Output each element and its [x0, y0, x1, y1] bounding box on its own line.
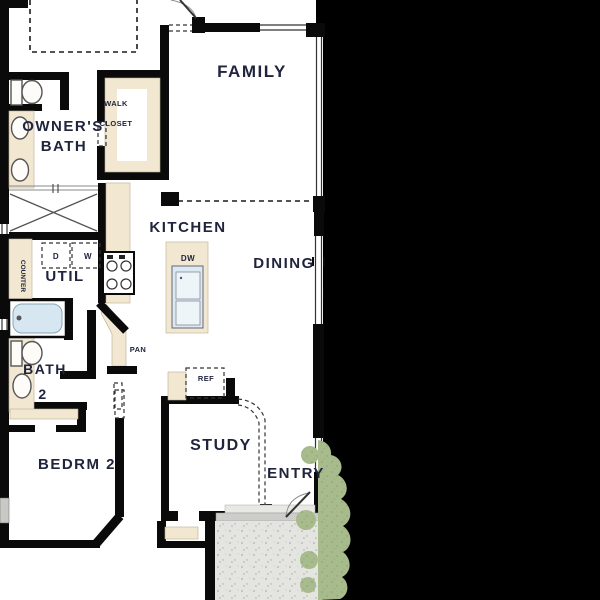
label-pantry: PAN — [130, 345, 146, 354]
owners-sink-2 — [12, 159, 29, 181]
room-label-util: UTIL — [45, 268, 84, 285]
room-label-bedroom2: BEDRM 2 — [38, 456, 116, 473]
dishwasher — [172, 266, 203, 328]
room-label-bath2-2: 2 — [38, 386, 47, 402]
room-label-family: FAMILY — [217, 62, 287, 81]
bath2-sink — [13, 374, 31, 398]
room-label-owners-bath-2: BATH — [41, 138, 88, 155]
room-label-dining: DINING — [253, 255, 315, 272]
label-dishwasher: DW — [181, 254, 195, 263]
label-walk-closet-2: CLOSET — [100, 119, 133, 128]
room-label-entry: ENTRY — [267, 465, 325, 482]
floor-plan-canvas: FAMILY OWNER'S BATH WALK CLOSET KITCHEN … — [0, 0, 600, 600]
bathtub — [9, 300, 66, 337]
room-label-owners-bath-1: OWNER'S — [22, 118, 104, 135]
label-refrigerator: REF — [198, 374, 214, 383]
room-label-bath2-1: BATH — [23, 361, 67, 377]
label-counter: COUNTER — [19, 260, 26, 292]
kitchen-counter — [106, 183, 130, 252]
label-dryer: D — [53, 252, 59, 261]
room-label-kitchen: KITCHEN — [149, 219, 226, 236]
bedroom2-closet-shelf — [10, 409, 78, 419]
toilet-tank — [11, 80, 22, 105]
label-walk-closet-1: WALK — [104, 99, 128, 108]
bedroom2-window — [0, 498, 9, 523]
toilet2-tank — [11, 341, 22, 366]
toilet-bowl — [22, 81, 42, 104]
label-washer: W — [84, 252, 92, 261]
ref-counter — [168, 372, 186, 400]
floor-plan-svg: FAMILY OWNER'S BATH WALK CLOSET KITCHEN … — [0, 0, 600, 600]
nook-bench — [165, 527, 198, 539]
stove — [103, 252, 134, 294]
room-label-study: STUDY — [190, 437, 252, 454]
